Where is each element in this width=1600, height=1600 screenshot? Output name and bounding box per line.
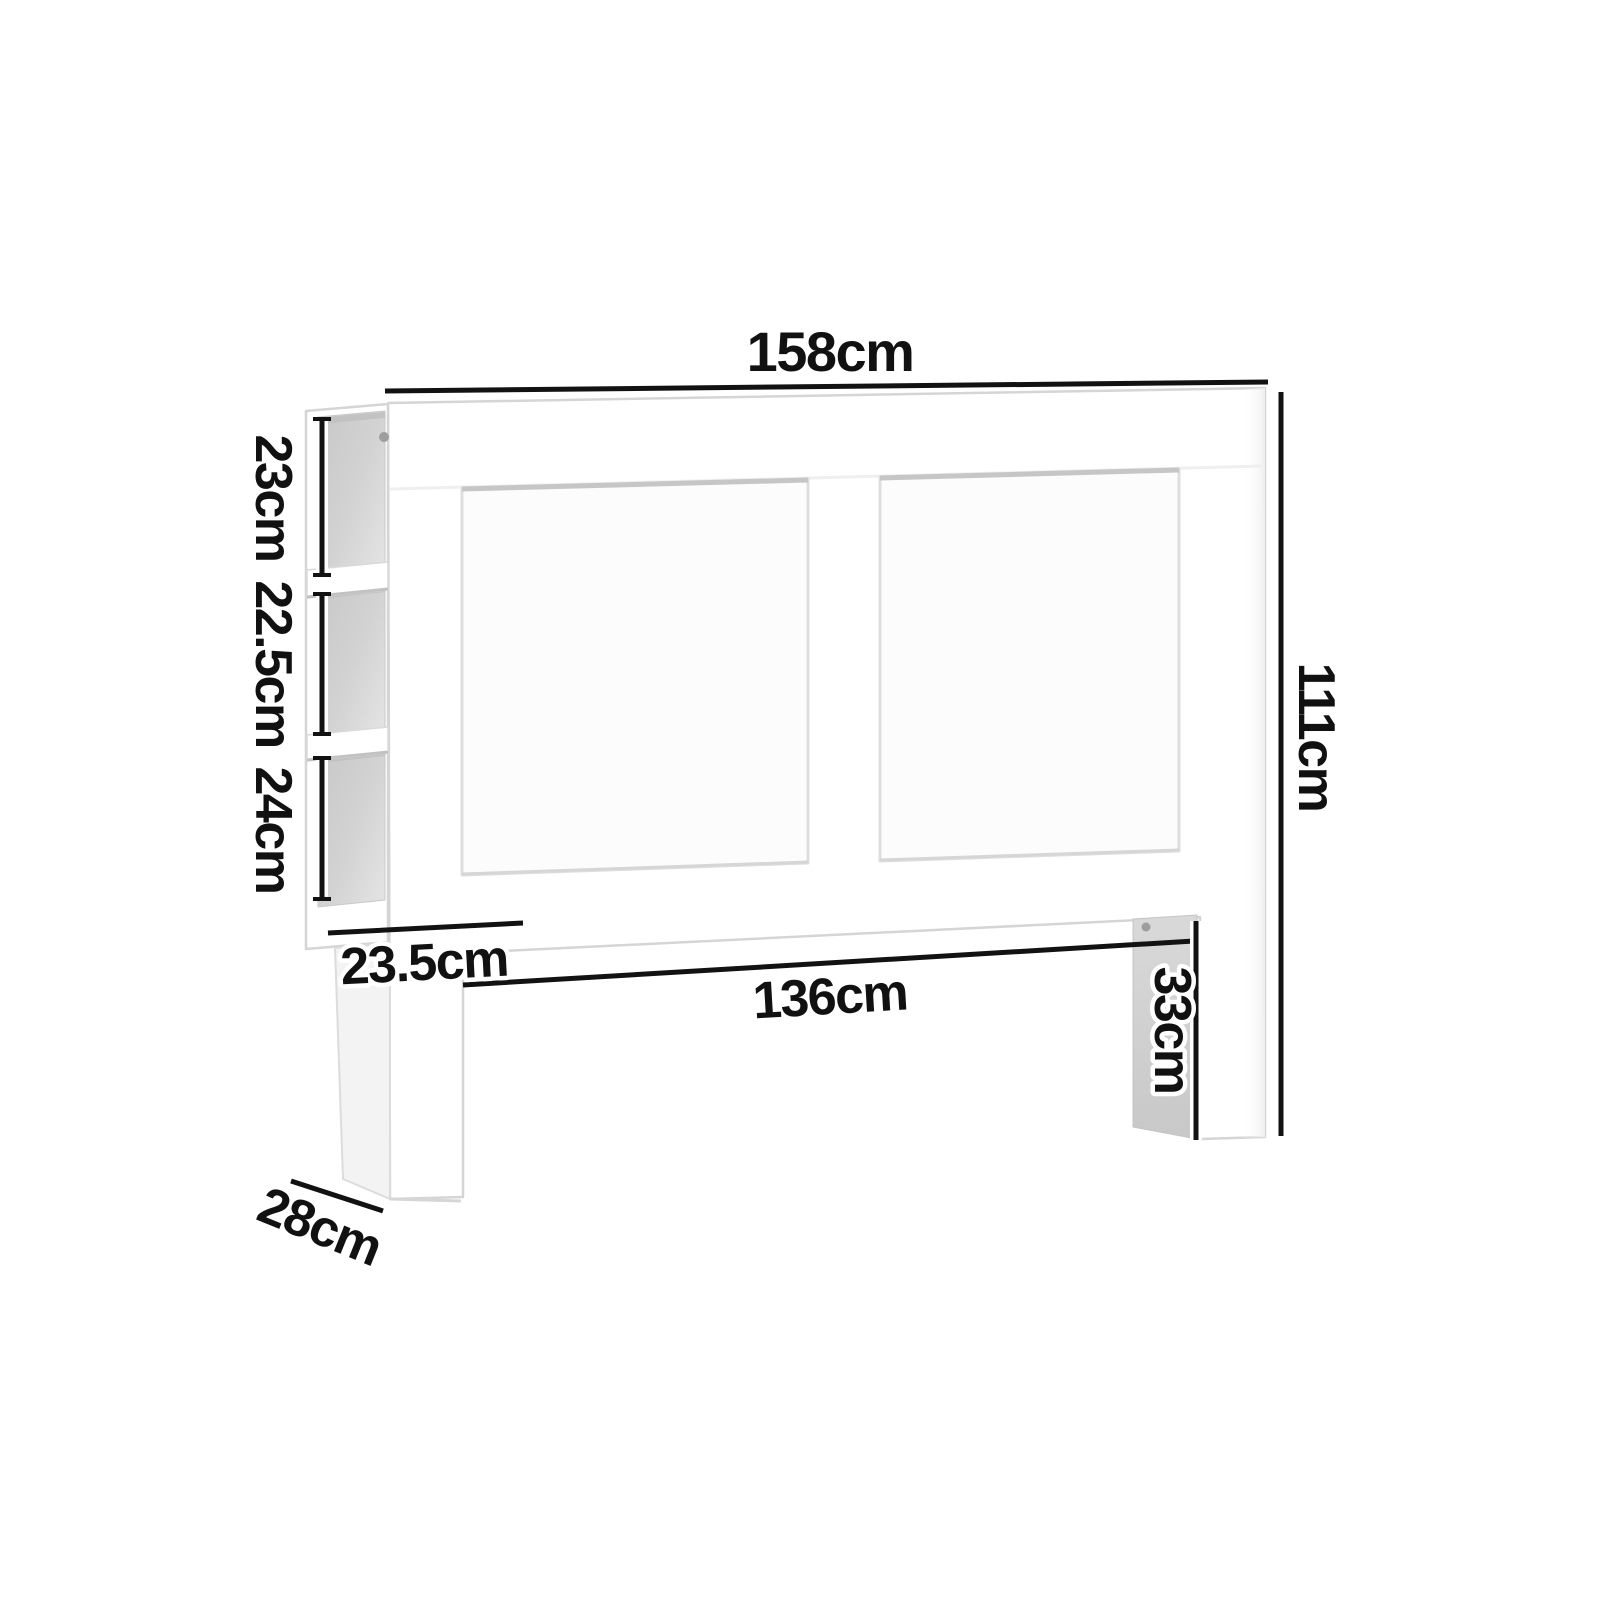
left-panel <box>462 479 808 875</box>
headboard-right-edge-shading <box>1242 388 1265 1138</box>
screw-hole-dot-shelf <box>379 432 389 442</box>
total-height-label: 111cm <box>1287 663 1345 812</box>
cubby-middle-opening <box>318 585 385 739</box>
cubby-top-opening <box>318 411 385 577</box>
cubby-bottom-label: 24cm <box>244 767 302 894</box>
screw-hole-dot-leg <box>1142 923 1151 932</box>
cubby-top-label: 23cm <box>244 435 302 562</box>
total-width-label: 158cm <box>747 320 914 383</box>
dimension-diagram-canvas: 158cm 111cm 23cm 22.5cm 24cm 23.5cm 136c… <box>0 0 1600 1600</box>
cubby-bottom-opening <box>318 749 385 907</box>
right-panel <box>880 469 1179 861</box>
inner-width-label: 136cm <box>751 963 909 1030</box>
left-leg-bottom-edge <box>390 1199 461 1201</box>
shelf-depth-label: 23.5cm <box>339 930 509 997</box>
leg-height-label: 33cm <box>1143 967 1201 1094</box>
headboard-dimension-diagram: 158cm 111cm 23cm 22.5cm 24cm 23.5cm 136c… <box>0 0 1600 1600</box>
cubby-middle-label: 22.5cm <box>244 580 302 747</box>
